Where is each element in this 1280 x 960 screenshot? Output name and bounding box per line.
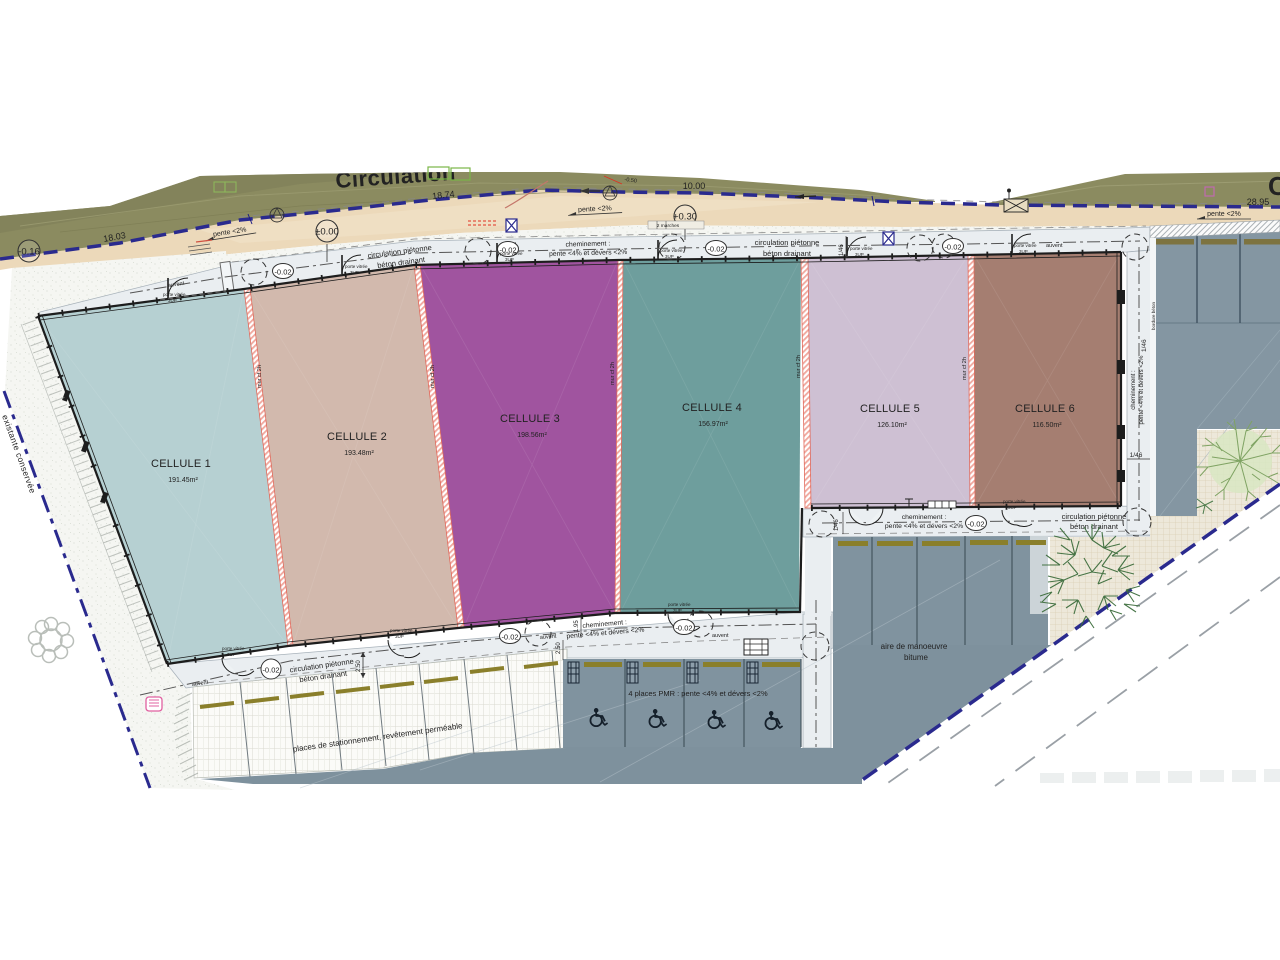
svg-text:193.48m²: 193.48m² xyxy=(344,450,374,457)
svg-text:cheminement :: cheminement : xyxy=(1131,370,1137,410)
svg-text:28.95: 28.95 xyxy=(1247,197,1270,207)
svg-text:3UP: 3UP xyxy=(1008,505,1017,510)
svg-text:auvent: auvent xyxy=(1046,243,1063,249)
svg-text:4 places PMR : pente <4% et dé: 4 places PMR : pente <4% et dévers <2% xyxy=(628,689,768,698)
svg-text:-0.02: -0.02 xyxy=(967,520,984,529)
svg-text:±0.00: ±0.00 xyxy=(315,227,339,238)
svg-text:3UP: 3UP xyxy=(395,634,404,639)
svg-text:1/46: 1/46 xyxy=(834,519,840,531)
svg-text:CELLULE 6: CELLULE 6 xyxy=(1015,403,1075,415)
svg-text:3UP: 3UP xyxy=(665,254,674,259)
svg-text:3UP: 3UP xyxy=(168,298,177,303)
svg-text:3UP: 3UP xyxy=(227,652,236,657)
svg-text:bordure béton: bordure béton xyxy=(1151,301,1156,330)
svg-text:mur cf 2h: mur cf 2h xyxy=(430,365,436,388)
svg-text:porte vitrée: porte vitrée xyxy=(1014,243,1037,248)
svg-text:béton drainant: béton drainant xyxy=(763,249,812,258)
svg-text:-0.02: -0.02 xyxy=(944,243,961,252)
svg-text:3UP: 3UP xyxy=(1019,249,1028,254)
svg-text:126.10m²: 126.10m² xyxy=(877,422,907,429)
svg-text:bitume: bitume xyxy=(904,653,929,662)
svg-text:3UP: 3UP xyxy=(505,257,514,262)
svg-text:porte vitrée: porte vitrée xyxy=(345,264,368,269)
svg-text:-0.02: -0.02 xyxy=(262,666,279,675)
svg-text:pente <4% et dévers <2%: pente <4% et dévers <2% xyxy=(1139,355,1145,425)
svg-text:-0.02: -0.02 xyxy=(675,624,692,633)
svg-text:pente <2%: pente <2% xyxy=(1207,211,1241,218)
svg-text:porte vitrée: porte vitrée xyxy=(660,248,683,253)
svg-text:auvent: auvent xyxy=(712,633,729,639)
svg-text:mur cf 2h: mur cf 2h xyxy=(610,362,616,385)
svg-text:béton drainant: béton drainant xyxy=(1070,522,1119,531)
svg-text:1/46: 1/46 xyxy=(1130,452,1143,459)
svg-text:10.00: 10.00 xyxy=(683,181,706,191)
svg-text:-0.02: -0.02 xyxy=(707,245,724,254)
svg-text:3UP: 3UP xyxy=(350,270,359,275)
svg-text:aire de manoeuvre: aire de manoeuvre xyxy=(881,642,948,651)
svg-text:CELLULE 4: CELLULE 4 xyxy=(682,402,742,414)
svg-text:1.95: 1.95 xyxy=(574,620,580,632)
svg-text:3UP: 3UP xyxy=(855,252,864,257)
svg-text:porte vitrée: porte vitrée xyxy=(850,246,873,251)
svg-text:156.97m²: 156.97m² xyxy=(698,421,728,428)
svg-text:116.50m²: 116.50m² xyxy=(1032,422,1062,429)
svg-text:-0.16: -0.16 xyxy=(18,247,40,258)
svg-text:191.45m²: 191.45m² xyxy=(168,477,198,484)
svg-text:3UP: 3UP xyxy=(673,608,682,613)
svg-text:cheminement :: cheminement : xyxy=(566,240,611,248)
svg-text:cheminement :: cheminement : xyxy=(902,514,947,521)
svg-text:-0.02: -0.02 xyxy=(274,268,291,277)
svg-text:mur cf 2h: mur cf 2h xyxy=(257,365,263,388)
svg-text:CELLULE 1: CELLULE 1 xyxy=(151,458,211,470)
svg-text:porte vitrée: porte vitrée xyxy=(1003,499,1026,504)
svg-text:porte vitrée: porte vitrée xyxy=(500,251,523,256)
svg-text:2.50: 2.50 xyxy=(556,642,562,654)
svg-text:pente <4% et dévers <2%: pente <4% et dévers <2% xyxy=(885,523,963,530)
svg-text:198.56m²: 198.56m² xyxy=(517,432,547,439)
svg-text:1/46: 1/46 xyxy=(1141,339,1148,352)
svg-text:circulation piétonne: circulation piétonne xyxy=(1062,512,1127,521)
svg-text:porte vitrée: porte vitrée xyxy=(668,602,691,607)
svg-text:porte vitrée: porte vitrée xyxy=(222,646,245,651)
svg-text:mur cf 2h: mur cf 2h xyxy=(962,357,968,380)
svg-text:porte vitrée: porte vitrée xyxy=(163,292,186,297)
svg-text:2.50: 2.50 xyxy=(356,660,362,672)
svg-text:porte vitrée: porte vitrée xyxy=(390,628,413,633)
svg-text:CELLULE 5: CELLULE 5 xyxy=(860,403,920,415)
svg-text:CELLULE 2: CELLULE 2 xyxy=(327,431,387,443)
svg-text:C: C xyxy=(1268,171,1280,201)
svg-text:2 marches: 2 marches xyxy=(657,223,680,229)
svg-text:1/46: 1/46 xyxy=(839,244,845,256)
svg-text:CELLULE 3: CELLULE 3 xyxy=(500,413,560,425)
svg-text:-0.02: -0.02 xyxy=(501,633,518,642)
svg-text:circulation piétonne: circulation piétonne xyxy=(755,238,820,247)
svg-text:mur cf 2h: mur cf 2h xyxy=(796,355,802,378)
